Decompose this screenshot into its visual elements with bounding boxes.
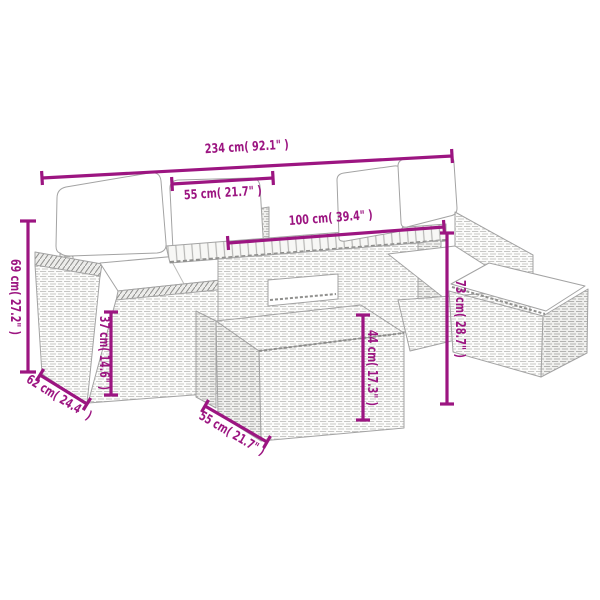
dim-label-stool-height: 44 cm( 17.3" ) [364,330,379,406]
dim-tick [273,171,274,185]
ottoman-back-sliver [196,311,216,408]
dimension-diagram: 234 cm( 92.1" ) 55 cm( 21.7" ) 100 cm( 3… [0,0,600,600]
dim-label-seat-height: 37 cm( 14.6" ) [96,316,111,390]
dim-tick [42,171,43,185]
dim-label-back-height: 69 cm( 27.2" ) [7,259,22,335]
dim-tick [228,236,229,250]
back-pillow [398,157,457,227]
dim-tick [172,177,173,191]
dim-tick [452,149,453,163]
dim-label-table-height: 73 cm( 28.7" ) [452,280,467,358]
